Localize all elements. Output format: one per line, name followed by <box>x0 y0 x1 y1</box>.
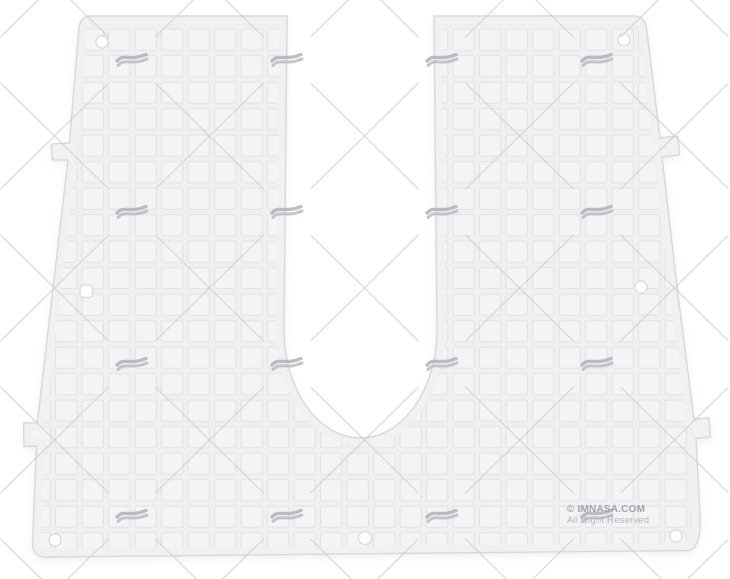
transom-pad-image <box>0 0 730 579</box>
product-photo: © IMNASA.COM All Right Reserved <box>0 0 730 579</box>
watermark-overlay <box>0 0 730 579</box>
